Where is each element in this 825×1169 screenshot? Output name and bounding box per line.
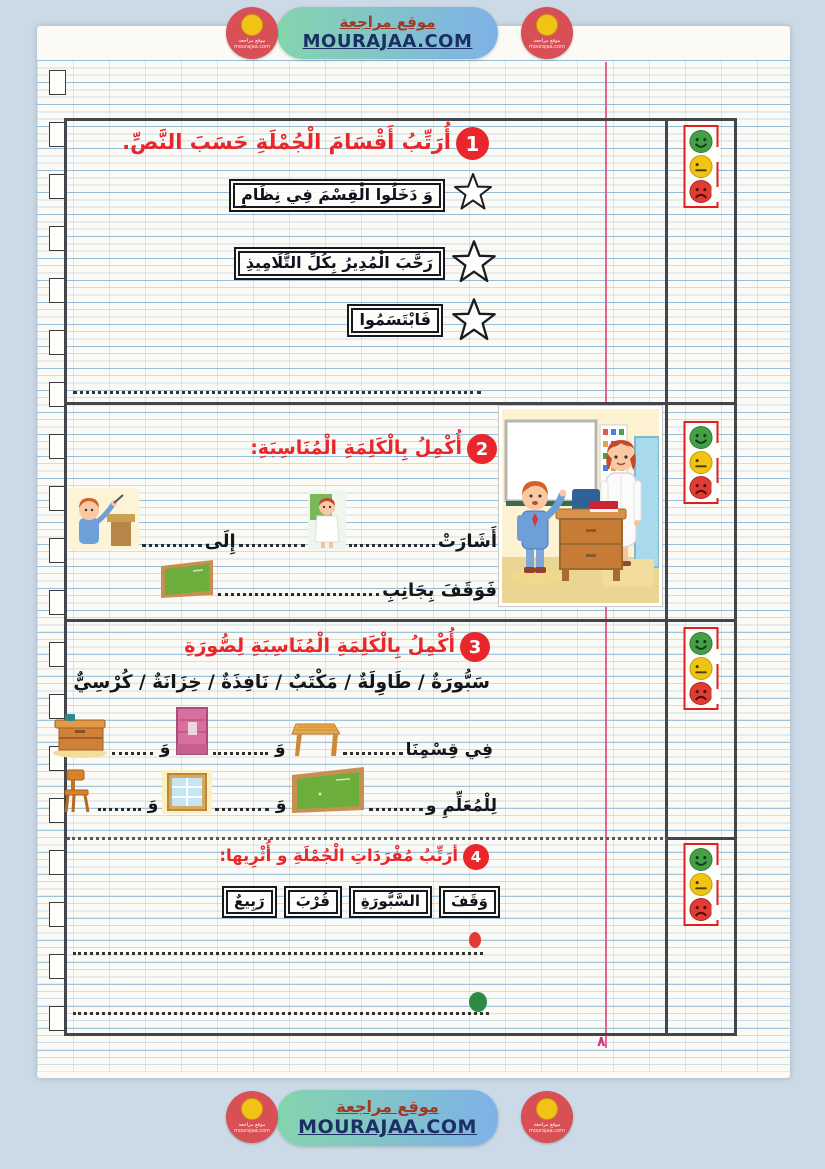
exercise4-title: أرَتِّبُ مُفْرَدَاتِ الْجُمْلَةِ و أُثْر… <box>219 846 458 865</box>
exercise2-cell: 2 أُكْمِلُ بِالْكَلِمَةِ الْمُنَاسِبَةِ: <box>67 405 668 622</box>
fill-line-2: فَوَقَفَ بِجَانِبِ <box>159 557 497 603</box>
answer-blank[interactable] <box>98 808 141 811</box>
picture-fill-row-2: لِلْمُعَلِّمِ و وَ وَ <box>59 764 497 818</box>
smiley-good-icon <box>689 847 714 872</box>
phrase-box[interactable]: فَابْتَسَمُوا <box>347 304 443 337</box>
logo-book-icon <box>241 14 263 36</box>
smiley-average-icon <box>689 872 714 897</box>
exercise4-rating-cell <box>668 840 734 1033</box>
check-notch[interactable] <box>712 443 721 458</box>
exercise1-cell: 1 أُرَتِّبُ أَقْسَامَ الْجُمْلَةِ حَسَبَ… <box>67 121 668 405</box>
answer-blank[interactable] <box>215 808 268 811</box>
logo-book-icon <box>536 14 558 36</box>
smiley-weak-icon <box>689 179 714 204</box>
word-tile[interactable]: رَبِيعٌ <box>222 886 277 918</box>
mourajaa-logo: موقع مراجعة mourajaa.com <box>226 7 278 59</box>
word-tiles-row: وَقَفَ السَّبُّورَةِ قُرْبَ رَبِيعٌ <box>197 879 500 925</box>
footer-banner: موقع مراجعة MOURAJAA.COM <box>277 1090 498 1146</box>
word-tile[interactable]: قُرْبَ <box>284 886 342 918</box>
answer-blank[interactable] <box>239 544 305 547</box>
smiley-good-icon <box>689 631 714 656</box>
green-dot-marker <box>469 992 487 1012</box>
blackboard-icon <box>290 766 366 818</box>
word-bank: سَبُّورَةٌ / طَاوِلَةٌ / مَكْتَبٌ / نَاف… <box>73 672 490 693</box>
exercise1-title: أُرَتِّبُ أَقْسَامَ الْجُمْلَةِ حَسَبَ ا… <box>122 130 451 154</box>
logo-url: mourajaa.com <box>529 45 565 51</box>
answer-blank[interactable] <box>112 752 153 755</box>
picture-fill-row-1: فِي قِسْمِنَا وَ وَ <box>51 710 493 762</box>
exercise4-cell: 4 أرَتِّبُ مُفْرَدَاتِ الْجُمْلَةِ و أُث… <box>67 840 668 1033</box>
cabinet-icon <box>174 706 210 762</box>
fill-word: فِي قِسْمِنَا <box>406 740 493 760</box>
conjunction-wa: وَ <box>276 794 287 814</box>
fill-word: أَشَارَتْ <box>438 531 497 552</box>
mourajaa-logo: موقع مراجعة mourajaa.com <box>521 1091 573 1143</box>
site-name-arabic: موقع مراجعة <box>339 13 435 32</box>
blackboard-icon <box>159 559 215 603</box>
exercise2-rating-cell <box>668 405 734 622</box>
check-notch[interactable] <box>712 187 721 202</box>
conjunction-wa: وَ <box>160 738 171 758</box>
fill-word: إِلَى <box>205 531 236 552</box>
worksheet-table: 1 أُرَتِّبُ أَقْسَامَ الْجُمْلَةِ حَسَبَ… <box>64 118 737 1036</box>
site-url-link[interactable]: MOURAJAA.COM <box>298 1117 477 1139</box>
star-icon[interactable] <box>451 297 497 343</box>
smiley-weak-icon <box>689 681 714 706</box>
exercise2-title: أُكْمِلُ بِالْكَلِمَةِ الْمُنَاسِبَةِ: <box>250 437 462 459</box>
exercise3-title: أُكْمِلُ بِالْكَلِمَةِ الْمُنَاسِبَةِ لِ… <box>184 635 455 657</box>
answer-blank[interactable] <box>343 752 403 755</box>
word-tile[interactable]: وَقَفَ <box>439 886 500 918</box>
worksheet-scan: ٨ موقع مراجعة MOURAJAA.COM موقع مراجعة m… <box>0 0 825 1169</box>
exercise1-number-badge: 1 <box>456 127 489 160</box>
margin-page-number: ٨ <box>597 1034 606 1050</box>
fill-line-1: أَشَارَتْ إِلَى <box>67 500 497 554</box>
answer-blank[interactable] <box>349 544 435 547</box>
teacher-icon <box>308 490 346 554</box>
phrase-box[interactable]: رَحَّبَ الْمُدِيرُ بِكُلِّ التَّلَامِيذِ <box>234 247 445 280</box>
check-notch[interactable] <box>712 649 721 664</box>
conjunction-wa: وَ <box>275 738 286 758</box>
chair-icon <box>59 768 95 818</box>
pupil-at-desk-icon <box>67 488 139 554</box>
classroom-image <box>502 409 659 603</box>
exercise1-rating-cell <box>668 121 734 405</box>
smiley-weak-icon <box>689 897 714 922</box>
site-url-link[interactable]: MOURAJAA.COM <box>303 32 473 53</box>
mourajaa-logo: موقع مراجعة mourajaa.com <box>521 7 573 59</box>
answer-line[interactable] <box>73 936 483 955</box>
desk-icon <box>51 712 109 762</box>
exercise2-number-badge: 2 <box>467 434 497 464</box>
window-icon <box>162 770 212 818</box>
rating-box[interactable] <box>684 421 719 504</box>
smiley-good-icon <box>689 129 714 154</box>
smiley-average-icon <box>689 154 714 179</box>
answer-line[interactable] <box>73 391 481 394</box>
logo-book-icon <box>536 1098 558 1120</box>
exercise3-rating-cell <box>668 622 734 840</box>
answer-blank[interactable] <box>218 593 379 596</box>
exercise3-number-badge: 3 <box>460 632 490 662</box>
answer-blank[interactable] <box>213 752 268 755</box>
logo-book-icon <box>241 1098 263 1120</box>
mourajaa-logo: موقع مراجعة mourajaa.com <box>226 1091 278 1143</box>
logo-url: mourajaa.com <box>529 1129 565 1135</box>
table-icon <box>290 714 340 762</box>
word-tile[interactable]: السَّبُّورَةِ <box>349 886 432 918</box>
exercise4-number-badge: 4 <box>463 844 489 870</box>
smiley-good-icon <box>689 425 714 450</box>
answer-blank[interactable] <box>369 808 422 811</box>
smiley-average-icon <box>689 450 714 475</box>
rating-box[interactable] <box>684 627 719 710</box>
fill-word: فَوَقَفَ بِجَانِبِ <box>382 580 497 601</box>
smiley-average-icon <box>689 656 714 681</box>
smiley-weak-icon <box>689 475 714 500</box>
check-notch[interactable] <box>712 147 721 162</box>
answer-blank[interactable] <box>142 544 202 547</box>
star-icon[interactable] <box>453 172 493 212</box>
header-banner: موقع مراجعة MOURAJAA.COM <box>277 7 498 59</box>
rating-box[interactable] <box>684 843 719 926</box>
check-notch[interactable] <box>712 865 721 880</box>
check-notch[interactable] <box>712 689 721 704</box>
site-name-arabic: موقع مراجعة <box>336 1097 439 1117</box>
check-notch[interactable] <box>712 483 721 498</box>
phrase-box[interactable]: وَ دَخَلُوا الْقِسْمَ فِي نِظَامٍ <box>229 179 445 212</box>
logo-url: mourajaa.com <box>234 1129 270 1135</box>
star-icon[interactable] <box>451 239 497 285</box>
answer-line[interactable] <box>73 996 489 1015</box>
check-notch[interactable] <box>712 905 721 920</box>
fill-word: لِلْمُعَلِّمِ و <box>426 796 497 816</box>
exercise3-cell: 3 أُكْمِلُ بِالْكَلِمَةِ الْمُنَاسِبَةِ … <box>67 622 668 840</box>
red-dot-marker <box>469 932 481 948</box>
conjunction-wa: وَ <box>148 794 159 814</box>
logo-url: mourajaa.com <box>234 45 270 51</box>
rating-box[interactable] <box>684 125 719 208</box>
